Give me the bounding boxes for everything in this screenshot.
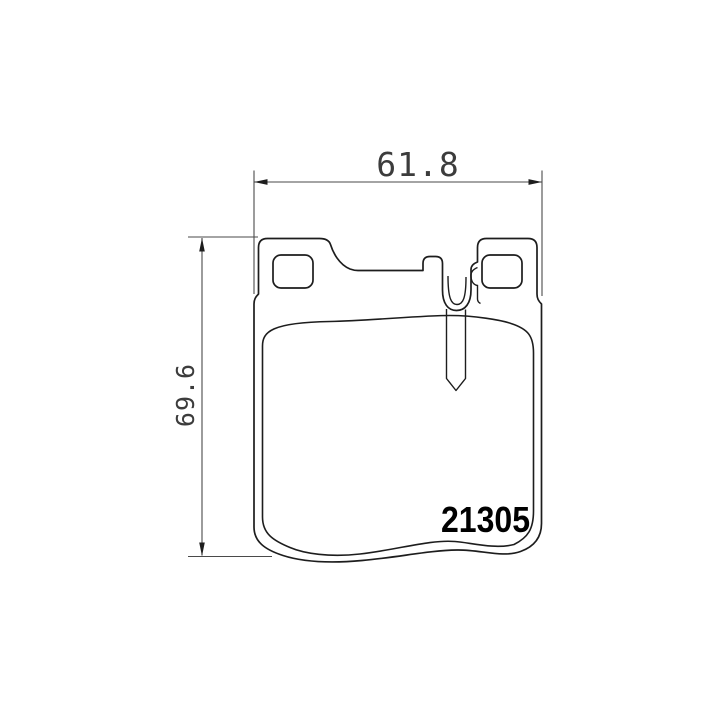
width-dimension-label: 61.8 bbox=[376, 145, 459, 184]
height-dimension-label: 69.6 bbox=[171, 363, 200, 427]
part-number-label: 21305 bbox=[441, 499, 530, 540]
height-arrow-top bbox=[199, 238, 205, 252]
width-arrow-right bbox=[529, 179, 543, 185]
right-ear-hole bbox=[482, 255, 522, 288]
left-ear-hole bbox=[273, 255, 313, 288]
technical-drawing-canvas: 61.8 69.6 21305 bbox=[0, 0, 720, 720]
width-arrow-left bbox=[254, 179, 268, 185]
retaining-hook-inner-curve bbox=[448, 276, 466, 305]
height-arrow-bottom bbox=[199, 543, 205, 557]
brake-pad-drawing: 61.8 69.6 21305 bbox=[0, 0, 720, 720]
